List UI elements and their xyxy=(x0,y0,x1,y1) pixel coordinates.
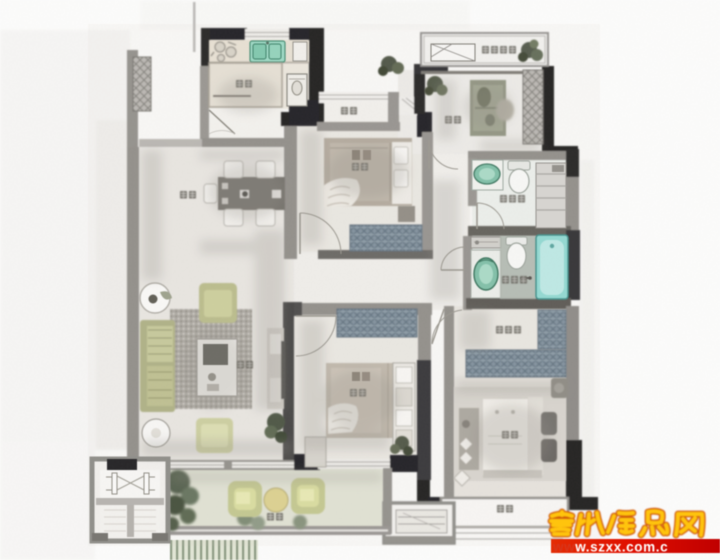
svg-text:www.szxx.com.c: www.szxx.com.c xyxy=(552,540,668,555)
